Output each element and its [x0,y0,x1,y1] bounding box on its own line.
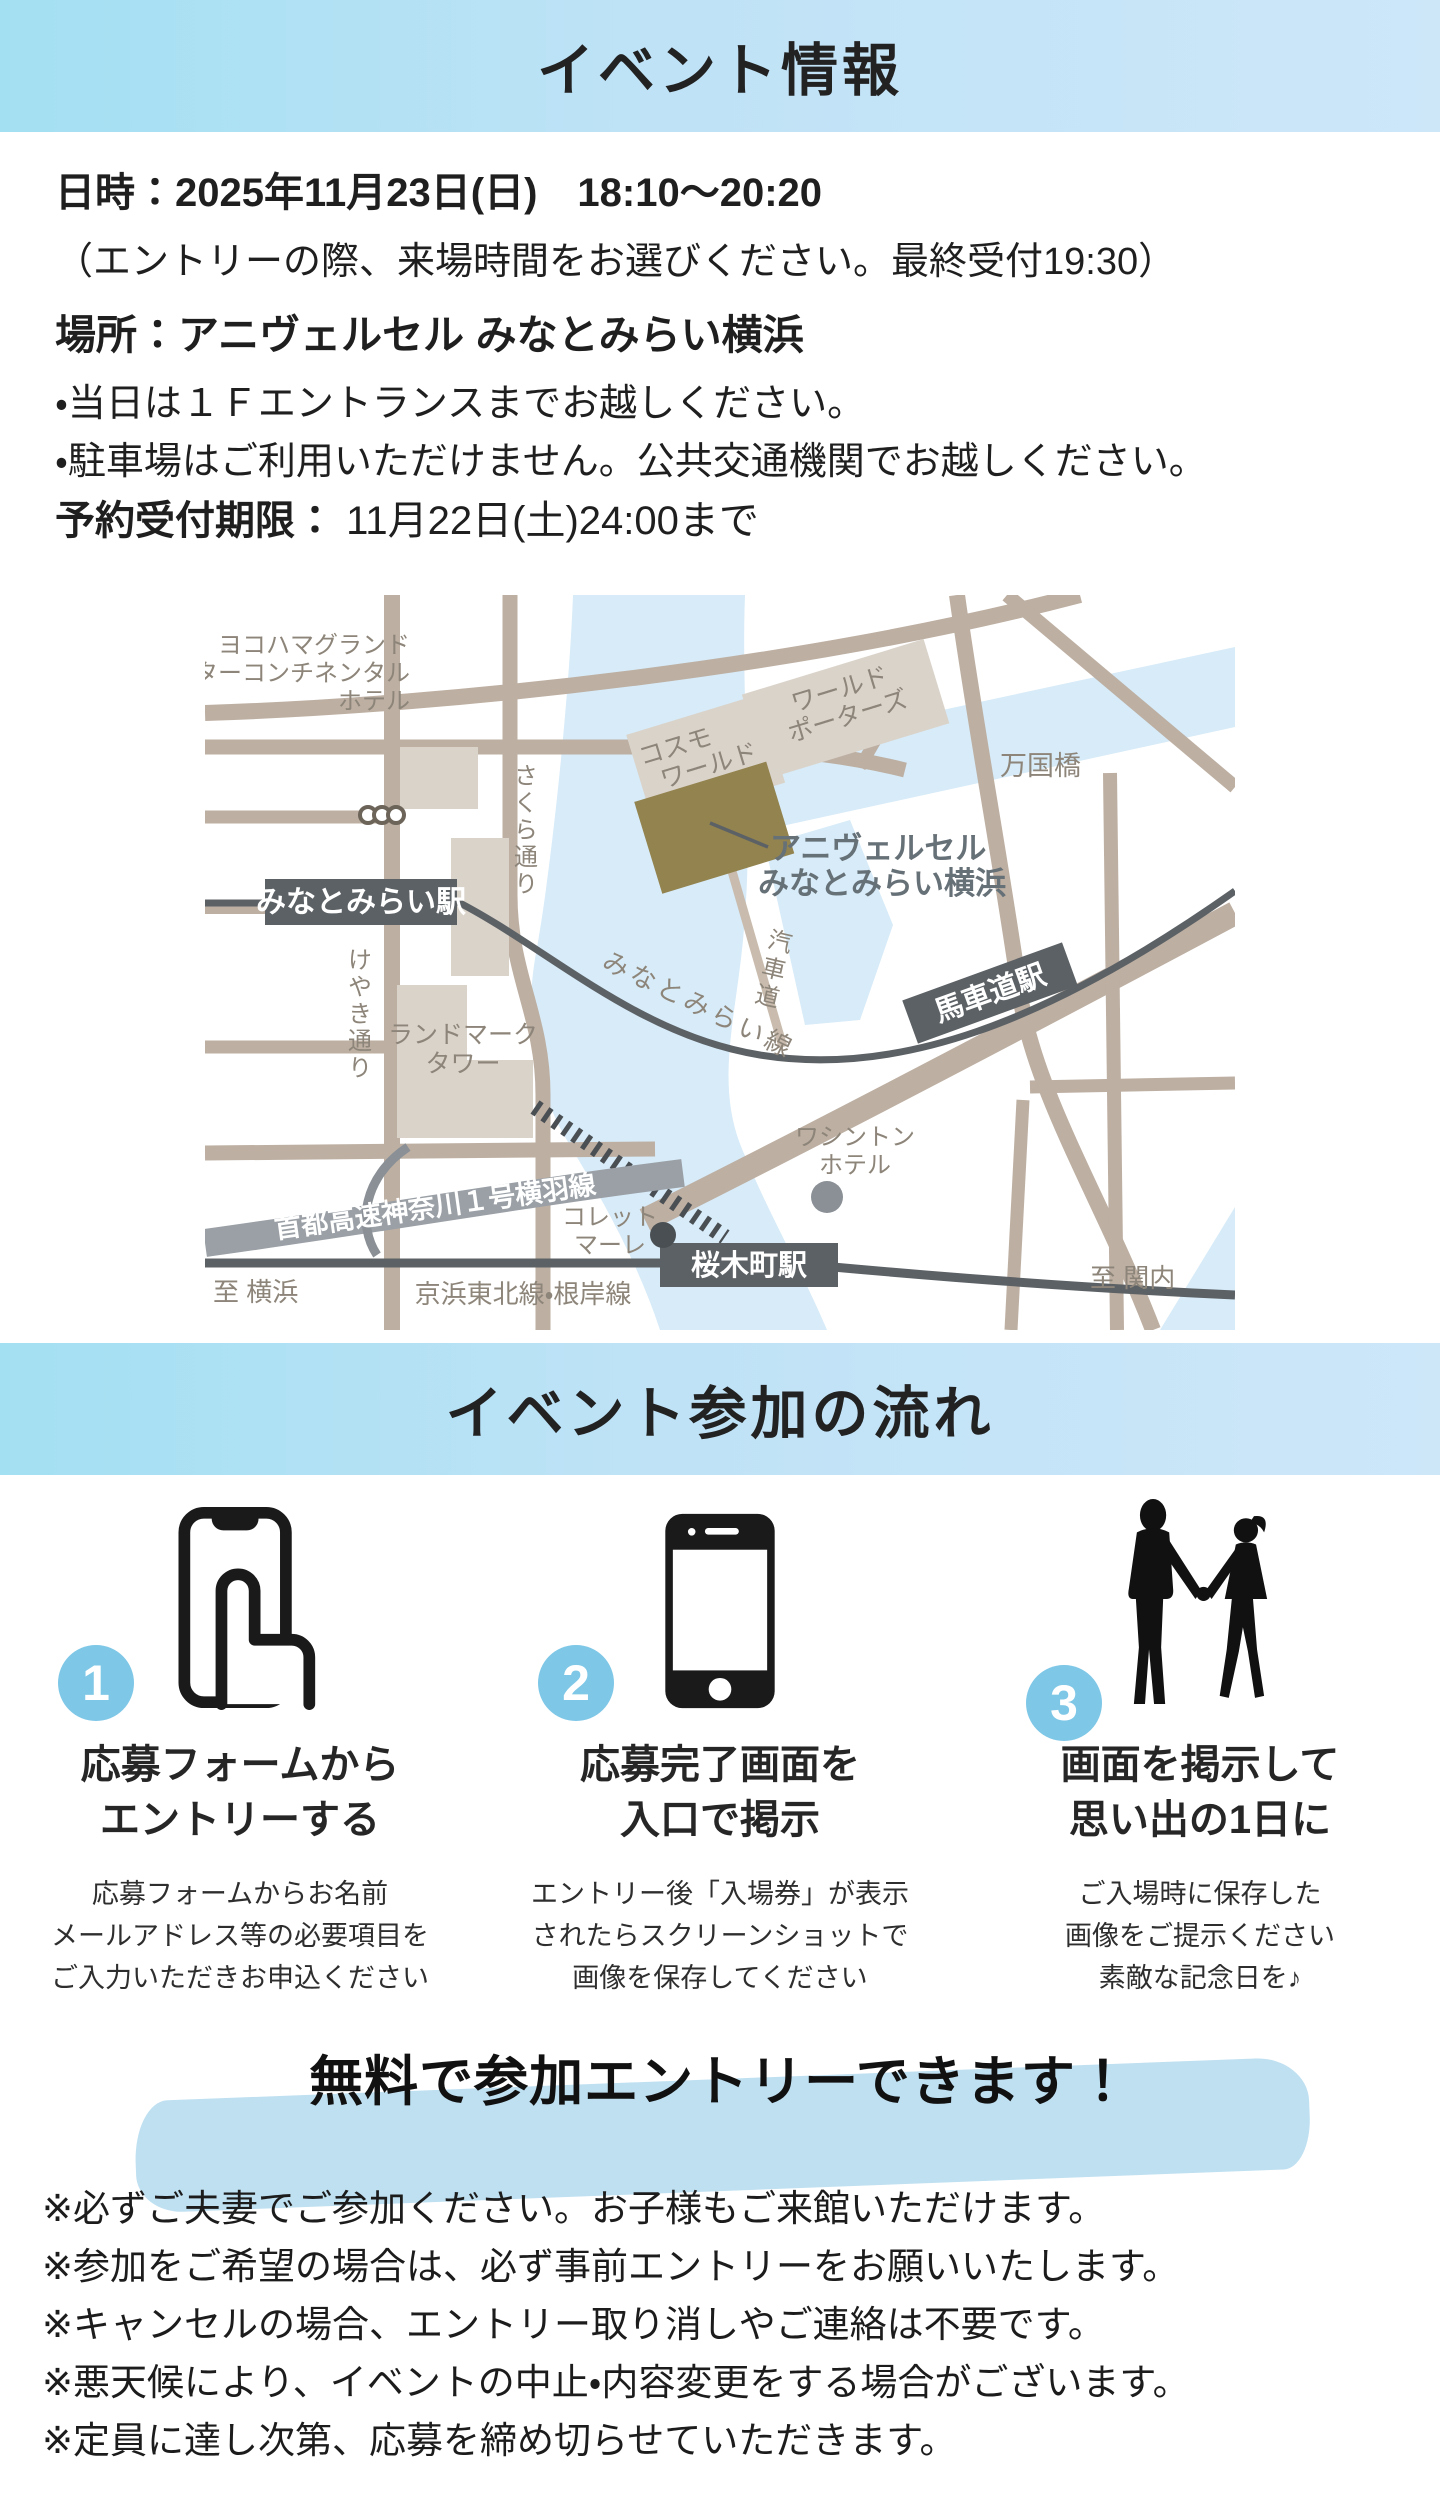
step-show-screen: 2 応募完了画面を 入口で掲示 エントリー後「入場券」が表示 されたらスクリーン… [480,1495,960,2000]
deadline-value: 11月22日(土)24:00まで [335,499,759,543]
map-illustration: 首都高速神奈川１号横羽線 みなとみらい駅 桜木町駅 馬車道駅 アニヴ [205,595,1235,1330]
note-line: ※参加をご希望の場合は、必ず事前エントリーをお願いいたします。 [42,2238,1422,2296]
deadline-label: 予約受付期限： [55,499,335,543]
couple-icon [1113,1498,1288,1710]
note-line: ※定員に達し次第、応募を締め切らせていただきます。 [42,2412,1422,2470]
bullet-entrance: ・当日は１Ｆエントランスまでお越しください。 [55,372,865,427]
svg-text:ホテル: ホテル [819,1152,891,1179]
svg-text:ホテル: ホテル [338,688,410,715]
hotel-label: ヨコハマグランド [218,632,410,659]
phone-tap-icon [125,1505,355,1710]
entry-time-note: （エントリーの際、来場時間をお選びください。最終受付19:30） [55,230,1176,285]
smartphone-icon [660,1512,780,1710]
bankokubashi-label: 万国橋 [1000,751,1081,781]
step-number-badge: 3 [1026,1665,1102,1741]
svg-text:みなとみらい横浜: みなとみらい横浜 [758,866,1006,901]
note-line: ※必ずご夫妻でご参加ください。お子様もご来館いただけます。 [42,2180,1422,2238]
svg-text:インターコンチネンタル: インターコンチネンタル [205,660,410,687]
step-number-badge: 1 [58,1645,134,1721]
minatomirai-station-badge: みなとみらい駅 [256,879,466,925]
svg-text:タワー: タワー [425,1050,500,1078]
svg-text:アニヴェルセル: アニヴェルセル [770,831,986,866]
datetime-value: 2025年11月23日(日) 18:10〜20:20 [175,171,822,215]
event-datetime: 日時：2025年11月23日(日) 18:10〜20:20 [55,160,822,218]
free-entry-text: 無料で参加エントリーできます！ [0,2037,1440,2116]
event-info-header: イベント情報 [0,0,1440,132]
traffic-signal-icon [360,807,404,823]
colette-mare-label: コレット [562,1204,658,1231]
step-description: ご入場時に保存した 画像をご提示ください 素敵な記念日を♪ [1065,1874,1335,2000]
svg-text:マーレ: マーレ [574,1232,646,1259]
place-value: アニヴェルセル みなとみらい横浜 [178,312,804,358]
step-entry-form: 1 応募フォームから エントリーする 応募フォームからお名前 メールアドレス等の… [0,1495,480,2000]
step-number-badge: 2 [538,1645,614,1721]
step-description: 応募フォームからお名前 メールアドレス等の必要項目を ご入力いただきお申込くださ… [51,1874,429,2000]
flow-header: イベント参加の流れ [0,1343,1440,1475]
step-title: 画面を掲示して 思い出の1日に [1061,1738,1340,1848]
to-yokohama-label: 至 横浜 [213,1277,298,1307]
step-description: エントリー後「入場券」が表示 されたらスクリーンショットで 画像を保存してくださ… [531,1874,909,2000]
sakura-street-label: さくら通り [510,763,538,898]
note-line: ※悪天候により、イベントの中止・内容変更をする場合がございます。 [42,2354,1422,2412]
keihin-tohoku-label: 京浜東北線・根岸線 [415,1279,632,1309]
landmark-tower-label: ランドマーク [388,1021,538,1049]
to-kannai-label: 至 関内 [1090,1263,1175,1293]
notes-section: ※必ずご夫妻でご参加ください。お子様もご来館いただけます。 ※参加をご希望の場合… [42,2180,1422,2470]
step-title: 応募フォームから エントリーする [81,1738,400,1848]
bullet-parking: ・駐車場はご利用いただけません。公共交通機関でお越しください。 [55,430,1207,485]
event-place: 場所：アニヴェルセル みなとみらい横浜 [55,301,804,361]
access-map: 首都高速神奈川１号横羽線 みなとみらい駅 桜木町駅 馬車道駅 アニヴ [205,595,1235,1330]
washington-hotel-label: ワシントン [795,1124,915,1151]
colette-mare-dot [650,1222,676,1248]
note-line: ※キャンセルの場合、エントリー取り消しやご連絡は不要です。 [42,2296,1422,2354]
sakuragicho-station-badge: 桜木町駅 [660,1243,838,1287]
svg-text:みなとみらい駅: みなとみらい駅 [256,886,466,919]
event-flyer-page: イベント情報 日時：2025年11月23日(日) 18:10〜20:20 （エン… [0,0,1440,2500]
flow-title: イベント参加の流れ [446,1368,995,1450]
svg-text:桜木町駅: 桜木町駅 [691,1249,807,1282]
venue-label: アニヴェルセル みなとみらい横浜 [758,831,1006,901]
participation-steps: 1 応募フォームから エントリーする 応募フォームからお名前 メールアドレス等の… [0,1495,1440,2000]
place-label: 場所： [55,312,178,358]
reservation-deadline: 予約受付期限： 11月22日(土)24:00まで [55,488,759,546]
page-title: イベント情報 [537,25,903,107]
datetime-label: 日時： [55,171,175,215]
step-title: 応募完了画面を 入口で掲示 [580,1738,860,1848]
step-memorial-day: 3 画面を掲示して 思い出 [960,1495,1440,2000]
washington-hotel-dot [811,1181,843,1213]
keyaki-street-label: けやき通り [344,947,372,1082]
